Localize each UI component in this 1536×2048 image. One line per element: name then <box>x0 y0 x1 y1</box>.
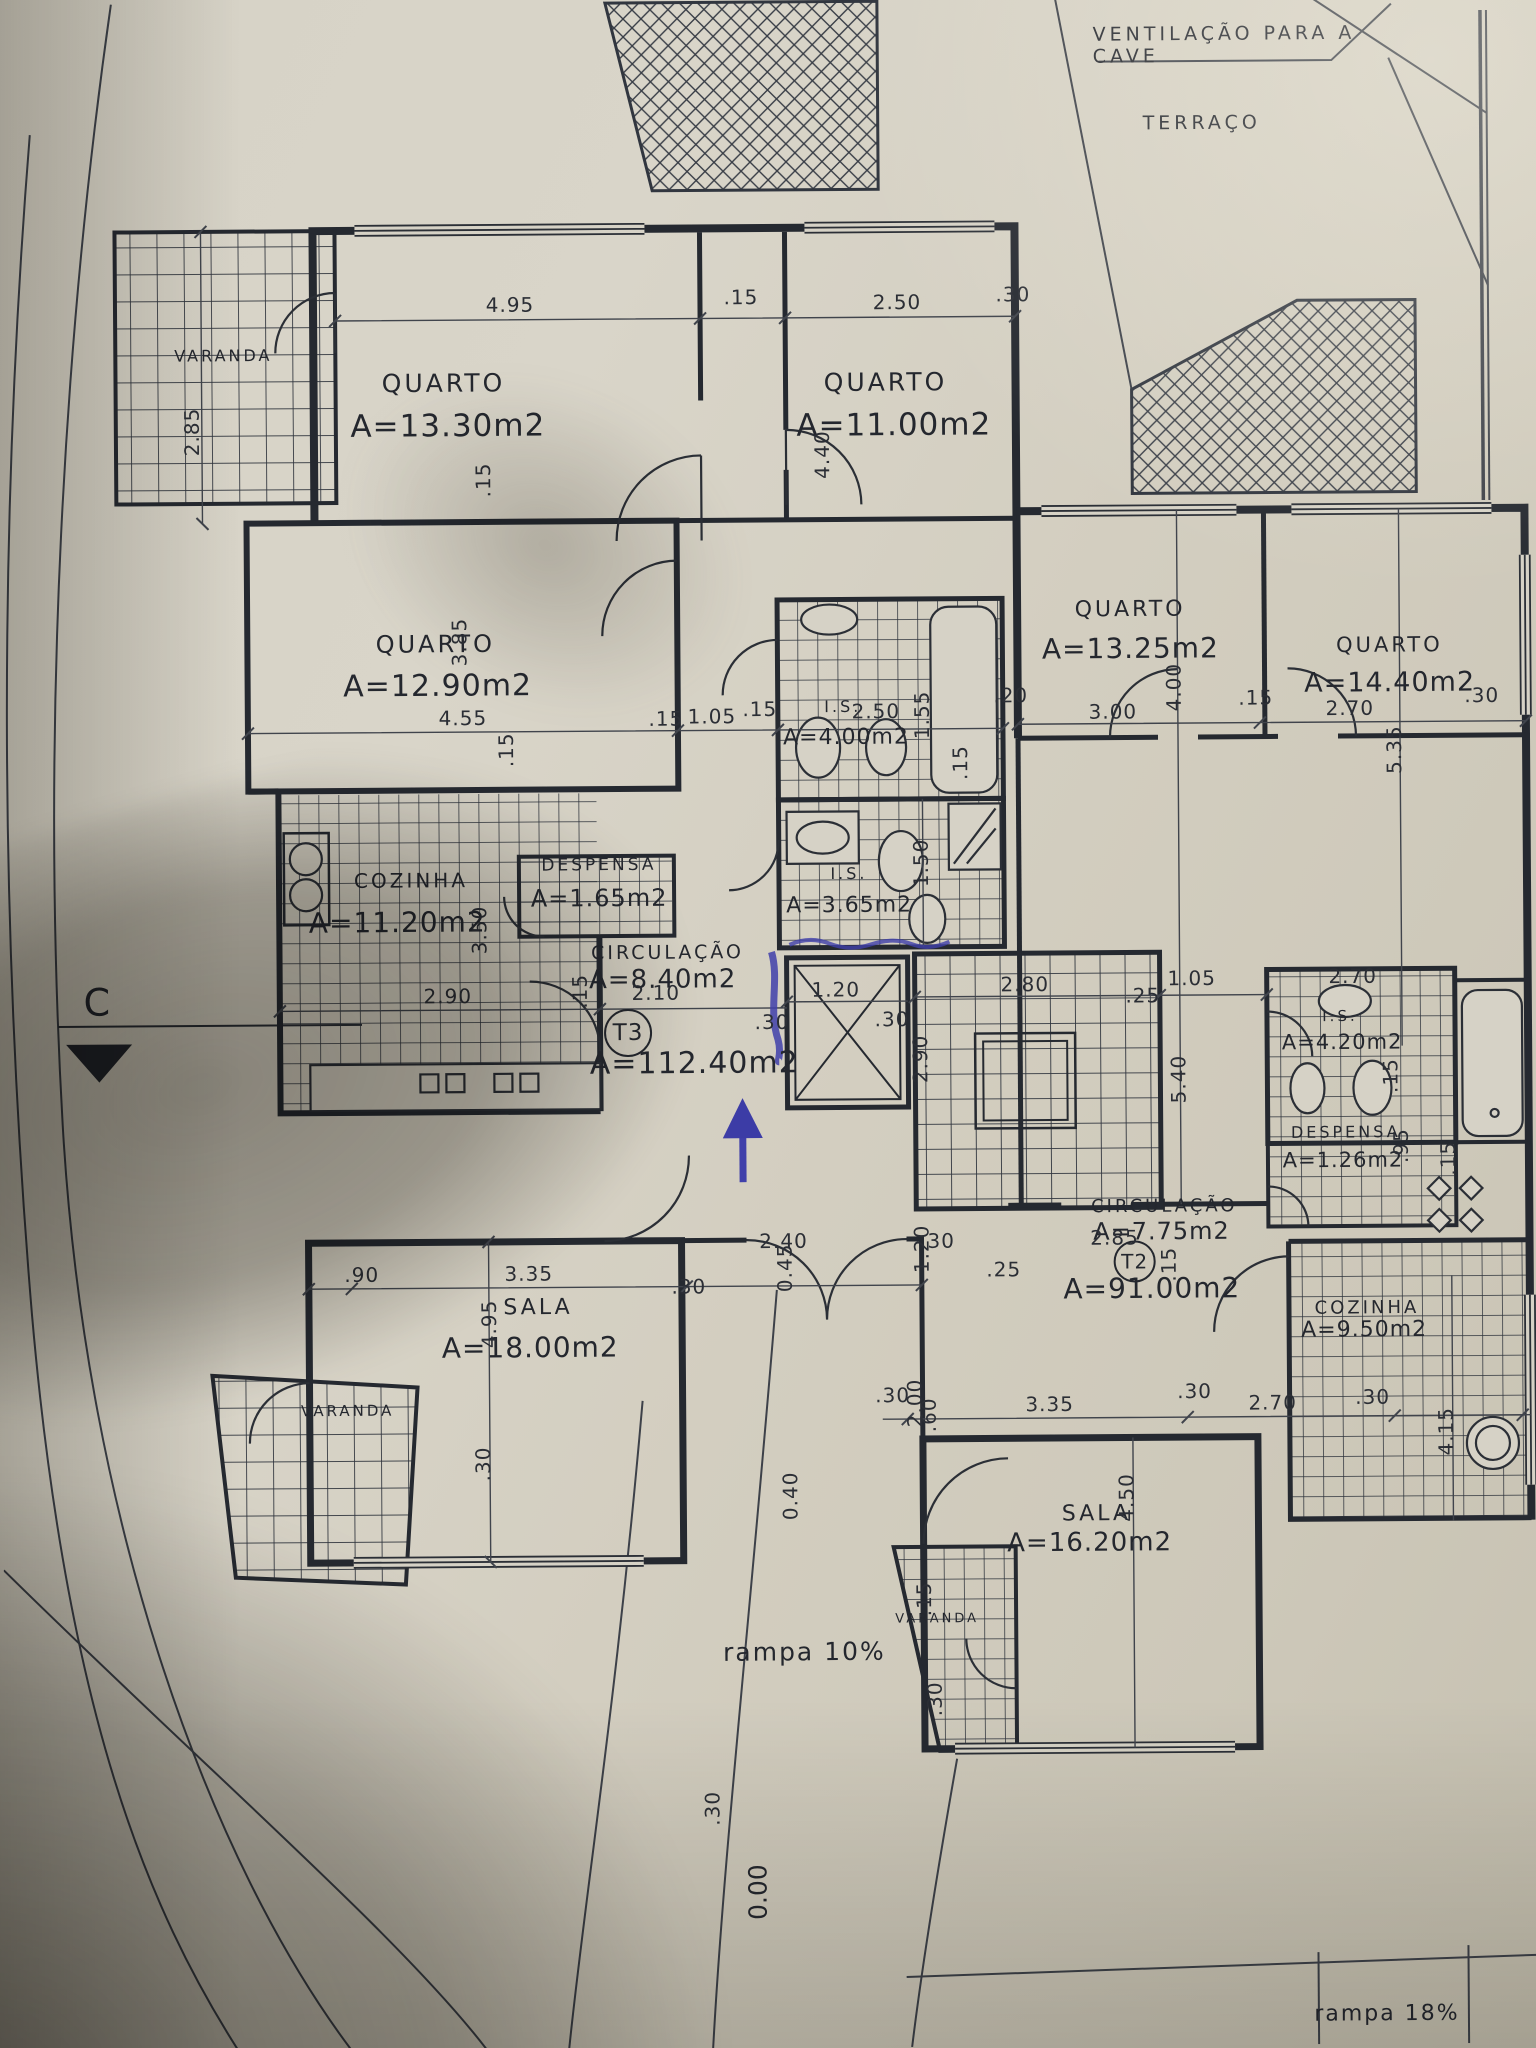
dimension-label-30: .30 <box>874 1007 909 1031</box>
dimension-label-47: .90 <box>344 1263 379 1287</box>
apartment-t2-total-area: A=91.00m2 <box>1063 1271 1240 1305</box>
dimension-label-43: .25 <box>986 1257 1021 1281</box>
room-area-cozinha-t3: A=11.20m2 <box>309 905 486 939</box>
dimension-label-10: .15 <box>648 707 683 731</box>
terrace-label: TERRAÇO <box>1143 112 1261 135</box>
room-area-cozinha-t2: A=9.50m2 <box>1301 1317 1427 1343</box>
room-label-quarto-1: QUARTO <box>382 368 506 398</box>
dimension-label-38: .95 <box>1389 1128 1413 1163</box>
dimension-label-64: .30 <box>700 1791 724 1826</box>
dimension-label-0: 4.95 <box>486 293 535 317</box>
dimension-label-14: 1.55 <box>910 691 934 740</box>
room-area-is-1: A=4.00m2 <box>783 725 909 751</box>
dimension-label-16: 3.00 <box>1088 699 1137 723</box>
dimension-label-39: .15 <box>1436 1141 1460 1176</box>
dimension-label-44: .30 <box>920 1229 955 1253</box>
room-label-cozinha-t2: COZINHA <box>1315 1297 1420 1319</box>
dimension-label-4: 2.85 <box>180 408 204 457</box>
dimension-label-23: 1.50 <box>909 839 933 888</box>
dimension-label-51: .30 <box>471 1447 495 1482</box>
room-label-varanda-top-left: VARANDA <box>174 346 272 366</box>
dimension-label-62: .15 <box>912 1581 936 1616</box>
dimension-label-19: 2.70 <box>1325 696 1374 720</box>
room-label-is-2: I.S. <box>830 864 867 883</box>
room-area-quarto-3: A=12.90m2 <box>343 668 532 704</box>
dimension-label-55: 2.70 <box>1248 1390 1297 1414</box>
room-area-is-2: A=3.65m2 <box>786 892 912 918</box>
room-label-circulacao-t3: CIRCULAÇÃO <box>591 941 744 964</box>
room-label-despensa-t2: DESPENSA <box>1291 1122 1401 1142</box>
apartment-t3-total-area: A=112.40m2 <box>590 1045 799 1081</box>
dimension-label-52: 3.35 <box>1025 1392 1074 1416</box>
dimension-label-5: 4.40 <box>810 430 834 479</box>
dimension-label-56: .30 <box>1355 1385 1390 1409</box>
room-label-is-3: I.S. <box>1322 1007 1358 1025</box>
dimension-label-35: 5.40 <box>1166 1055 1190 1104</box>
room-area-sala-t2: A=16.20m2 <box>1007 1527 1172 1558</box>
dimension-label-31: 2.90 <box>908 1035 932 1084</box>
elevation-zero-label: 0.00 <box>743 1864 772 1920</box>
dimension-label-40: 2.85 <box>1090 1225 1139 1249</box>
dimension-label-27: 2.10 <box>631 981 680 1005</box>
section-marker-letter: C <box>83 981 110 1025</box>
dimension-label-26: .15 <box>568 974 592 1009</box>
dimension-label-59: 4.50 <box>1114 1473 1138 1522</box>
dimension-label-3: .30 <box>995 282 1030 306</box>
dimension-label-1: .15 <box>723 285 758 309</box>
dimension-label-24: 2.90 <box>423 984 472 1008</box>
dimension-label-11: 1.05 <box>688 704 737 728</box>
room-label-quarto-5: QUARTO <box>1336 632 1443 657</box>
dimension-label-32: 2.80 <box>1000 972 1049 996</box>
room-area-quarto-4: A=13.25m2 <box>1042 631 1219 665</box>
dimension-label-33: .25 <box>1125 983 1160 1007</box>
room-label-cozinha-t3: COZINHA <box>354 868 468 893</box>
room-area-quarto-1: A=13.30m2 <box>350 408 545 445</box>
dimension-label-61: 0.40 <box>778 1472 802 1521</box>
dimension-label-34: 1.05 <box>1167 966 1216 990</box>
room-label-quarto-2: QUARTO <box>824 367 948 397</box>
dimension-label-8: 4.55 <box>439 706 488 730</box>
room-label-circulacao-t2: CIRCULAÇÃO <box>1091 1195 1238 1217</box>
dimension-label-46: 0.45 <box>773 1244 797 1293</box>
dimension-label-9: .15 <box>494 732 518 767</box>
room-area-despensa-t3: A=1.65m2 <box>531 884 668 913</box>
dimension-label-15: .20 <box>993 683 1028 707</box>
dimension-label-25: 3.50 <box>467 906 491 955</box>
ramp-right-label: rampa 18% <box>1314 2001 1459 2027</box>
dimension-label-6: .15 <box>471 462 495 497</box>
dimension-label-58: .60 <box>917 1397 941 1432</box>
room-area-quarto-5: A=14.40m2 <box>1304 667 1475 699</box>
dimension-label-49: .30 <box>671 1274 706 1298</box>
dimension-label-36: 2.70 <box>1328 964 1377 988</box>
dimension-label-41: .15 <box>1157 1247 1181 1282</box>
dimension-label-37: .15 <box>1378 1058 1402 1093</box>
room-label-sala-t3: SALA <box>503 1295 572 1320</box>
room-label-varanda-bottom-left: VARANDA <box>301 1402 395 1421</box>
dimension-label-13: 2.50 <box>851 699 900 723</box>
room-label-despensa-t3: DESPENSA <box>541 855 656 876</box>
room-label-varanda-bottom-mid: VARANDA <box>895 1611 979 1627</box>
dimension-label-18: .15 <box>1238 685 1273 709</box>
floor-plan-photo: VENTILAÇÃO PARA A CAVE TERRAÇO rampa 10%… <box>0 0 1536 2048</box>
dimension-label-29: .30 <box>754 1010 789 1034</box>
dimension-label-21: .30 <box>1464 683 1499 707</box>
room-label-quarto-4: QUARTO <box>1075 597 1186 623</box>
dimension-label-7: 3.85 <box>447 618 471 667</box>
dimension-label-63: .30 <box>923 1681 947 1716</box>
dimension-label-28: 1.20 <box>811 977 860 1001</box>
dimension-label-22: .15 <box>948 745 972 780</box>
dimension-label-48: 3.35 <box>504 1262 553 1286</box>
dimension-label-12: .15 <box>742 697 777 721</box>
dimension-label-17: 4.00 <box>1161 663 1185 712</box>
dimension-label-54: .30 <box>1177 1379 1212 1403</box>
plan-labels: VENTILAÇÃO PARA A CAVE TERRAÇO rampa 10%… <box>0 0 1536 2048</box>
ventilation-note: VENTILAÇÃO PARA A CAVE <box>1093 22 1384 68</box>
dimension-label-20: 5.35 <box>1382 725 1406 774</box>
dimension-label-60: 4.15 <box>1434 1407 1458 1456</box>
room-area-is-3: A=4.20m2 <box>1282 1030 1403 1055</box>
ramp-left-label: rampa 10% <box>723 1637 886 1667</box>
room-area-sala-t3: A=18.00m2 <box>442 1331 619 1365</box>
room-area-despensa-t2: A=1.26m2 <box>1283 1148 1404 1173</box>
dimension-label-2: 2.50 <box>873 290 922 314</box>
room-label-quarto-3: QUARTO <box>376 630 496 659</box>
dimension-label-50: 4.95 <box>477 1300 501 1349</box>
